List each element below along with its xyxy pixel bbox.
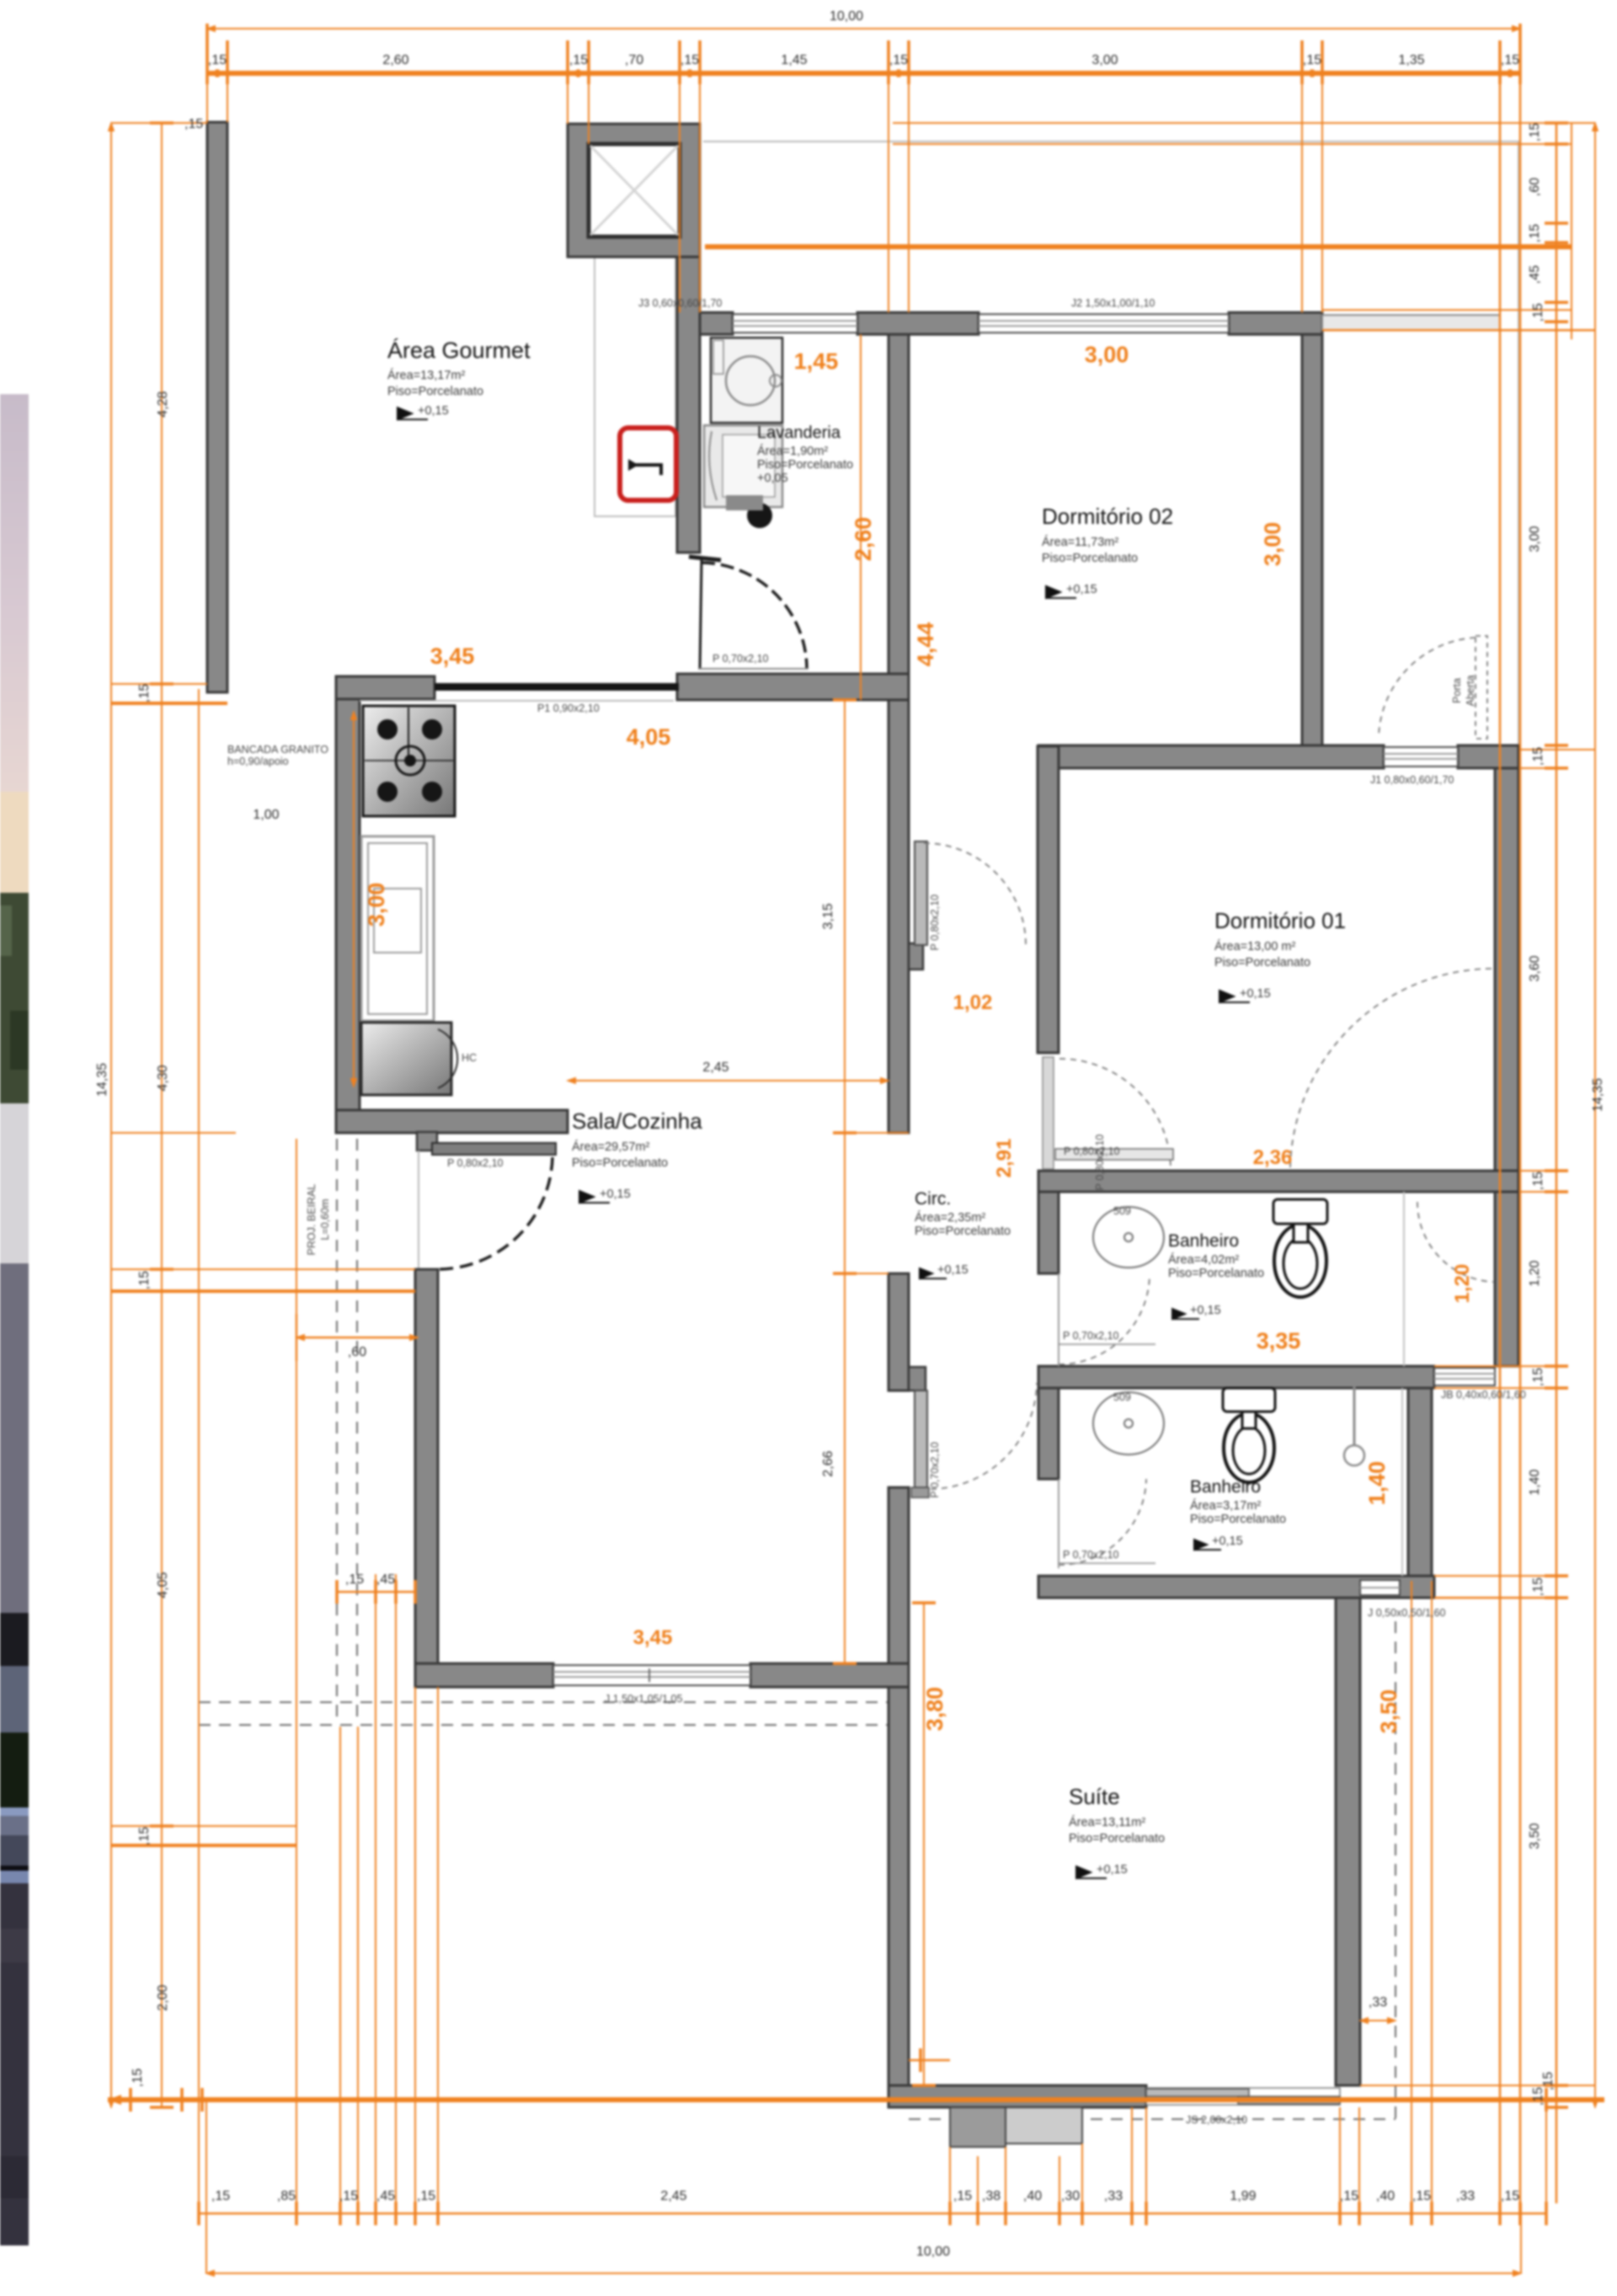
svg-text:,15: ,15 xyxy=(680,53,699,67)
svg-text:JB 0,40x0,60/1,60: JB 0,40x0,60/1,60 xyxy=(1441,1389,1526,1401)
svg-text:1,20: 1,20 xyxy=(1451,1264,1474,1304)
svg-text:h=0,90/apoio: h=0,90/apoio xyxy=(227,756,289,767)
svg-text:P 0,70x2,10: P 0,70x2,10 xyxy=(929,1442,941,1498)
svg-text:,15: ,15 xyxy=(1303,53,1321,67)
svg-text:,15: ,15 xyxy=(1340,2189,1358,2203)
svg-text:Piso=Porcelanato: Piso=Porcelanato xyxy=(1190,1513,1286,1526)
svg-text:1,45: 1,45 xyxy=(781,53,807,67)
svg-text:509: 509 xyxy=(1113,1391,1131,1403)
svg-text:Suíte: Suíte xyxy=(1069,1784,1120,1809)
svg-text:+0,05: +0,05 xyxy=(757,472,788,485)
svg-text:Porta: Porta xyxy=(1451,678,1463,703)
svg-text:3,45: 3,45 xyxy=(633,1626,673,1649)
svg-text:4,05: 4,05 xyxy=(627,724,671,750)
svg-text:Área=13,00 m²: Área=13,00 m² xyxy=(1214,939,1295,953)
svg-text:2,60: 2,60 xyxy=(851,517,876,562)
svg-text:1,20: 1,20 xyxy=(1528,1260,1542,1286)
svg-text:2,45: 2,45 xyxy=(660,2189,686,2203)
svg-text:,15: ,15 xyxy=(1528,224,1542,243)
svg-text:HC: HC xyxy=(462,1052,477,1064)
svg-text:1,99: 1,99 xyxy=(1230,2189,1256,2203)
svg-text:3,00: 3,00 xyxy=(1260,522,1285,567)
svg-text:,40: ,40 xyxy=(1023,2189,1042,2203)
svg-text:,33: ,33 xyxy=(1456,2189,1475,2203)
svg-text:,15: ,15 xyxy=(211,2189,230,2203)
svg-text:Piso=Porcelanato: Piso=Porcelanato xyxy=(1042,552,1138,565)
svg-text:,15: ,15 xyxy=(1531,747,1545,766)
svg-text:P 0,80x2,10: P 0,80x2,10 xyxy=(929,894,941,951)
svg-text:3,45: 3,45 xyxy=(430,643,475,669)
svg-text:Piso=Porcelanato: Piso=Porcelanato xyxy=(1168,1267,1264,1280)
svg-text:3,35: 3,35 xyxy=(1257,1328,1301,1354)
svg-text:3,00: 3,00 xyxy=(1091,53,1118,67)
svg-text:+0,15: +0,15 xyxy=(600,1188,631,1201)
svg-text:,15: ,15 xyxy=(1531,1578,1545,1596)
svg-text:Dormitório 02: Dormitório 02 xyxy=(1042,504,1173,529)
svg-text:1,40: 1,40 xyxy=(1528,1469,1542,1495)
svg-text:14,35: 14,35 xyxy=(95,1063,109,1097)
svg-text:,45: ,45 xyxy=(376,2189,395,2203)
svg-text:Circ.: Circ. xyxy=(915,1189,951,1209)
svg-text:Piso=Porcelanato: Piso=Porcelanato xyxy=(1069,1832,1165,1845)
svg-text:PROJ. BEIRAL: PROJ. BEIRAL xyxy=(306,1184,318,1256)
svg-text:4,30: 4,30 xyxy=(156,1065,170,1091)
svg-text:,85: ,85 xyxy=(277,2189,296,2203)
svg-text:,60: ,60 xyxy=(1528,178,1542,196)
svg-text:,15: ,15 xyxy=(184,117,203,131)
svg-text:,45: ,45 xyxy=(1528,265,1542,284)
svg-text:,15: ,15 xyxy=(1531,1368,1545,1386)
svg-text:P 0,80x2,10: P 0,80x2,10 xyxy=(1094,1135,1106,1191)
svg-text:,15: ,15 xyxy=(1528,123,1542,141)
svg-text:Piso=Porcelanato: Piso=Porcelanato xyxy=(915,1225,1011,1238)
svg-text:,15: ,15 xyxy=(569,53,588,67)
svg-text:+0,15: +0,15 xyxy=(1097,1863,1128,1877)
svg-text:14,35: 14,35 xyxy=(1591,1078,1605,1112)
svg-text:+0,15: +0,15 xyxy=(1190,1304,1221,1317)
svg-text:,15: ,15 xyxy=(1412,2189,1431,2203)
svg-text:P 0,70x2,10: P 0,70x2,10 xyxy=(1063,1549,1119,1561)
svg-text:4,28: 4,28 xyxy=(156,391,170,417)
svg-text:1,45: 1,45 xyxy=(794,349,839,374)
svg-text:J3 0,60x0,60/1,70: J3 0,60x0,60/1,70 xyxy=(638,297,722,309)
svg-text:2,36: 2,36 xyxy=(1253,1146,1293,1169)
svg-text:,15: ,15 xyxy=(417,2189,435,2203)
svg-text:Banheiro: Banheiro xyxy=(1190,1477,1261,1497)
svg-text:3,00: 3,00 xyxy=(1528,526,1542,552)
svg-text:,15: ,15 xyxy=(1501,2189,1519,2203)
svg-text:,38: ,38 xyxy=(982,2189,1001,2203)
svg-text:P1 0,90x2,10: P1 0,90x2,10 xyxy=(537,702,600,714)
svg-text:L=0,60m: L=0,60m xyxy=(319,1199,331,1241)
svg-text:3,60: 3,60 xyxy=(1528,955,1542,981)
svg-text:Aberta: Aberta xyxy=(1465,675,1476,707)
svg-text:Piso=Porcelanato: Piso=Porcelanato xyxy=(572,1156,668,1170)
svg-text:Área=1,90m²: Área=1,90m² xyxy=(757,444,828,458)
svg-text:3,80: 3,80 xyxy=(922,1687,947,1732)
svg-text:,15: ,15 xyxy=(339,2189,358,2203)
svg-text:P 0,80x2,10: P 0,80x2,10 xyxy=(1064,1145,1120,1157)
svg-text:,70: ,70 xyxy=(625,53,643,67)
svg-text:J2 1,50x1,00/1,10: J2 1,50x1,00/1,10 xyxy=(1071,297,1155,309)
svg-text:2,45: 2,45 xyxy=(702,1060,728,1075)
svg-text:,15: ,15 xyxy=(953,2189,972,2203)
svg-text:J 0,50x0,50/1,60: J 0,50x0,50/1,60 xyxy=(1368,1607,1445,1619)
svg-text:+0,15: +0,15 xyxy=(418,404,449,418)
svg-text:4,05: 4,05 xyxy=(156,1572,170,1598)
svg-text:3,50: 3,50 xyxy=(1528,1823,1542,1849)
svg-text:Área=29,57m²: Área=29,57m² xyxy=(572,1140,649,1154)
svg-text:Área=2,35m²: Área=2,35m² xyxy=(915,1210,985,1225)
svg-text:2,66: 2,66 xyxy=(821,1450,835,1476)
svg-text:P 0,70x2,10: P 0,70x2,10 xyxy=(712,653,769,665)
svg-text:,15: ,15 xyxy=(889,53,908,67)
svg-text:,15: ,15 xyxy=(208,53,227,67)
svg-text:,15: ,15 xyxy=(1501,53,1519,67)
svg-text:3,15: 3,15 xyxy=(821,903,835,929)
svg-text:3,50: 3,50 xyxy=(1376,1690,1401,1734)
svg-text:+0,15: +0,15 xyxy=(1212,1535,1243,1548)
svg-text:Lavanderia: Lavanderia xyxy=(757,424,841,442)
svg-text:,15: ,15 xyxy=(345,1572,364,1587)
svg-text:3,00: 3,00 xyxy=(1085,342,1129,367)
svg-text:2,60: 2,60 xyxy=(382,53,408,67)
svg-text:Área=3,17m²: Área=3,17m² xyxy=(1190,1498,1261,1513)
svg-text:1,40: 1,40 xyxy=(1364,1461,1390,1506)
svg-text:Área=13,17m²: Área=13,17m² xyxy=(387,368,465,382)
svg-text:4,44: 4,44 xyxy=(913,622,938,667)
svg-text:+0,15: +0,15 xyxy=(1066,583,1097,596)
svg-text:Área=13,11m²: Área=13,11m² xyxy=(1069,1815,1145,1829)
svg-text:1,00: 1,00 xyxy=(253,808,279,822)
svg-text:,15: ,15 xyxy=(137,1827,152,1845)
svg-text:2,00: 2,00 xyxy=(156,1984,170,2010)
svg-text:1,35: 1,35 xyxy=(1398,53,1424,67)
svg-text:,15: ,15 xyxy=(131,2069,145,2087)
svg-text:,15: ,15 xyxy=(1531,2087,1545,2106)
svg-text:BANCADA GRANITO: BANCADA GRANITO xyxy=(227,744,328,756)
svg-text:,15: ,15 xyxy=(137,1271,152,1289)
svg-text:,33: ,33 xyxy=(1369,1995,1387,2010)
svg-text:2,91: 2,91 xyxy=(993,1139,1016,1178)
svg-text:+0,15: +0,15 xyxy=(1240,987,1271,1001)
svg-text:,45: ,45 xyxy=(376,1572,395,1587)
svg-text:,15: ,15 xyxy=(1531,303,1545,322)
svg-text:1,02: 1,02 xyxy=(953,991,993,1014)
svg-text:Piso=Porcelanato: Piso=Porcelanato xyxy=(757,458,853,472)
svg-text:,30: ,30 xyxy=(1061,2189,1080,2203)
svg-text:509: 509 xyxy=(1113,1205,1131,1217)
svg-text:Área=4,02m²: Área=4,02m² xyxy=(1168,1252,1239,1267)
svg-text:J1 0,80x0,60/1,70: J1 0,80x0,60/1,70 xyxy=(1370,774,1454,786)
svg-text:J 1,50x1,05/1,05: J 1,50x1,05/1,05 xyxy=(605,1693,682,1705)
svg-text:,15: ,15 xyxy=(137,684,152,702)
svg-text:,60: ,60 xyxy=(348,1345,366,1359)
svg-text:+0,15: +0,15 xyxy=(937,1263,969,1277)
svg-text:10,00: 10,00 xyxy=(916,2245,950,2259)
svg-text:3,00: 3,00 xyxy=(364,883,389,927)
svg-text:10,00: 10,00 xyxy=(830,9,863,24)
svg-text:P 0,80x2,10: P 0,80x2,10 xyxy=(447,1157,504,1169)
svg-text:,15: ,15 xyxy=(1531,1172,1545,1190)
svg-text:Piso=Porcelanato: Piso=Porcelanato xyxy=(1214,956,1310,969)
svg-text:Piso=Porcelanato: Piso=Porcelanato xyxy=(387,385,483,398)
svg-text:Sala/Cozinha: Sala/Cozinha xyxy=(572,1108,702,1134)
svg-text:Dormitório 01: Dormitório 01 xyxy=(1214,908,1346,933)
svg-text:,33: ,33 xyxy=(1104,2189,1123,2203)
svg-text:Banheiro: Banheiro xyxy=(1168,1231,1239,1251)
svg-text:JS 2,00x2,10: JS 2,00x2,10 xyxy=(1186,2114,1247,2126)
svg-text:Área=11,73m²: Área=11,73m² xyxy=(1042,535,1118,549)
svg-text:,40: ,40 xyxy=(1376,2189,1395,2203)
svg-text:Área Gourmet: Área Gourmet xyxy=(387,338,531,363)
svg-text:P 0,70x2,10: P 0,70x2,10 xyxy=(1063,1330,1119,1342)
